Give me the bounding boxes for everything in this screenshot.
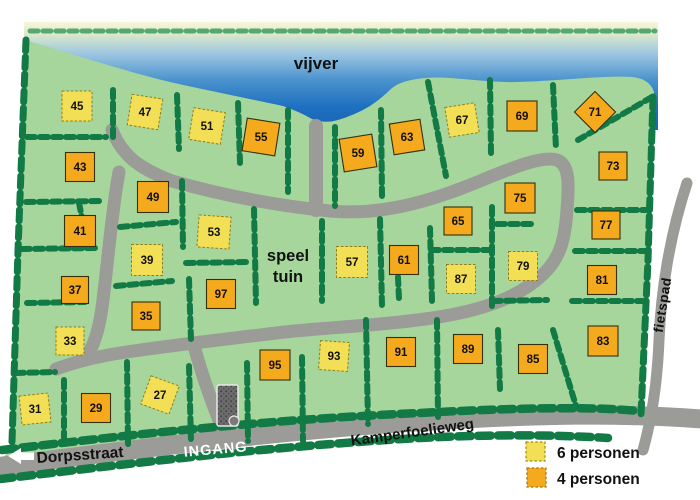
lot-63: 63 [389, 119, 424, 154]
legend: 6 personen 4 personen [526, 442, 640, 488]
lot-number-87: 87 [455, 274, 468, 286]
lot-43: 43 [66, 153, 95, 182]
lot-number-37: 37 [69, 285, 82, 297]
lot-85: 85 [519, 345, 548, 374]
lot-number-51: 51 [201, 121, 214, 133]
lot-47: 47 [127, 94, 162, 129]
lot-49: 49 [138, 182, 169, 213]
lot-number-47: 47 [139, 107, 152, 119]
lot-number-77: 77 [600, 220, 613, 232]
lot-67: 67 [445, 103, 479, 137]
lot-41: 41 [65, 216, 96, 247]
lot-number-71: 71 [589, 107, 602, 119]
pond-label: vijver [294, 54, 339, 73]
lot-number-65: 65 [452, 216, 465, 228]
lot-93: 93 [319, 341, 350, 372]
lot-29: 29 [82, 394, 111, 423]
lot-77: 77 [592, 211, 620, 239]
lot-number-81: 81 [596, 275, 609, 287]
lot-number-91: 91 [395, 347, 408, 359]
legend-label-4-personen: 4 personen [557, 471, 640, 488]
lot-37: 37 [62, 277, 89, 304]
legend-label-6-personen: 6 personen [557, 445, 640, 462]
lot-55: 55 [242, 118, 280, 156]
lot-number-45: 45 [71, 101, 84, 113]
lot-89: 89 [454, 335, 483, 364]
lot-number-89: 89 [462, 344, 475, 356]
lot-number-93: 93 [328, 351, 341, 363]
lot-97: 97 [207, 280, 236, 309]
lot-59: 59 [339, 134, 377, 172]
lot-number-97: 97 [215, 289, 228, 301]
lot-number-49: 49 [147, 192, 160, 204]
lot-69: 69 [507, 101, 537, 131]
lot-number-53: 53 [208, 227, 221, 239]
lot-number-61: 61 [398, 255, 411, 267]
bike-path-label: fietspad [651, 276, 675, 333]
lot-83: 83 [588, 326, 618, 356]
lot-45: 45 [62, 91, 92, 121]
playground-label-line2: tuin [273, 268, 303, 286]
lot-53: 53 [197, 215, 231, 249]
lot-number-39: 39 [141, 255, 154, 267]
legend-swatch-6-personen [526, 442, 545, 461]
lot-number-67: 67 [456, 115, 469, 127]
lot-61: 61 [390, 246, 419, 275]
lot-number-83: 83 [597, 336, 610, 348]
campground-map: 4547515559636769717343497541536539576179… [0, 0, 700, 500]
lot-number-95: 95 [269, 360, 282, 372]
lot-number-35: 35 [140, 311, 153, 323]
lot-number-33: 33 [64, 336, 77, 348]
legend-swatch-4-personen [527, 468, 546, 487]
lot-number-79: 79 [517, 261, 530, 273]
lot-39: 39 [132, 245, 163, 276]
lot-number-41: 41 [74, 226, 87, 238]
lot-number-43: 43 [74, 162, 87, 174]
lot-33: 33 [56, 327, 84, 355]
lot-number-29: 29 [90, 403, 103, 415]
park-map-svg: 4547515559636769717343497541536539576179… [0, 0, 700, 500]
playground-label-line1: speel [267, 247, 309, 265]
lot-number-31: 31 [29, 404, 42, 416]
lot-65: 65 [444, 207, 472, 235]
lot-57: 57 [337, 247, 368, 278]
lot-91: 91 [387, 338, 416, 367]
lot-number-73: 73 [607, 161, 620, 173]
lot-35: 35 [132, 302, 160, 330]
lot-number-63: 63 [401, 132, 414, 144]
lot-number-55: 55 [255, 132, 268, 144]
lot-51: 51 [189, 108, 226, 145]
lot-73: 73 [599, 152, 627, 180]
lot-87: 87 [447, 265, 476, 294]
lot-number-57: 57 [346, 257, 359, 269]
lot-81: 81 [588, 266, 617, 295]
lot-31: 31 [19, 393, 51, 425]
lot-number-85: 85 [527, 354, 540, 366]
entrance-building [217, 385, 239, 426]
lot-number-27: 27 [154, 390, 167, 402]
lot-number-75: 75 [514, 193, 527, 205]
lot-79: 79 [509, 252, 538, 281]
lot-95: 95 [260, 350, 290, 380]
lot-number-69: 69 [516, 111, 529, 123]
lot-number-59: 59 [352, 148, 365, 160]
lot-75: 75 [505, 183, 535, 213]
